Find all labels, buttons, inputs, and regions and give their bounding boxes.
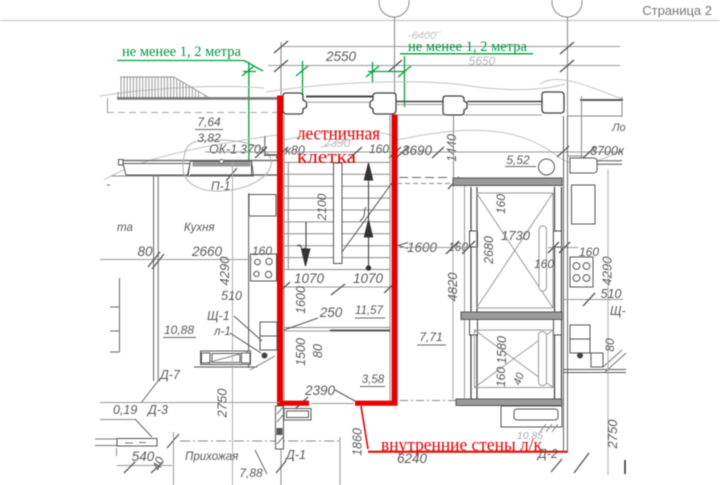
svg-text:2390: 2390 <box>304 383 336 398</box>
svg-text:1440: 1440 <box>445 134 459 162</box>
svg-text:1500: 1500 <box>294 338 308 366</box>
svg-text:3,58: 3,58 <box>362 374 385 386</box>
svg-text:Д-1: Д-1 <box>284 448 306 462</box>
svg-text:1730: 1730 <box>501 228 531 243</box>
svg-text:Д-3: Д-3 <box>146 403 168 417</box>
svg-text:клетка: клетка <box>297 147 357 168</box>
svg-text:1580: 1580 <box>495 336 509 364</box>
svg-text:2550: 2550 <box>325 49 357 64</box>
svg-text:11,57: 11,57 <box>355 305 384 317</box>
svg-text:250: 250 <box>319 305 343 320</box>
svg-text:4290: 4290 <box>217 256 232 286</box>
svg-text:Д-7: Д-7 <box>158 368 181 382</box>
svg-text:510: 510 <box>601 287 622 301</box>
svg-text:Кухня: Кухня <box>184 222 215 234</box>
svg-text:4820: 4820 <box>445 272 460 302</box>
svg-text:та: та <box>117 222 133 234</box>
svg-text:Прихожая: Прихожая <box>185 451 238 463</box>
svg-text:10,88: 10,88 <box>164 323 194 337</box>
svg-text:1600: 1600 <box>294 286 308 314</box>
svg-text:2100: 2100 <box>315 193 329 221</box>
svg-text:Щ-1: Щ-1 <box>207 309 230 323</box>
svg-text:510: 510 <box>221 289 242 303</box>
svg-text:не менее 1, 2 метра: не менее 1, 2 метра <box>122 44 241 60</box>
svg-text:3690: 3690 <box>402 143 433 158</box>
svg-text:10,85: 10,85 <box>517 430 543 442</box>
svg-text:160: 160 <box>494 367 508 387</box>
svg-text:2680: 2680 <box>482 236 496 265</box>
svg-text:6240: 6240 <box>397 451 428 466</box>
svg-text:3700к: 3700к <box>590 144 625 158</box>
svg-text:2750: 2750 <box>605 419 620 450</box>
svg-text:7,88: 7,88 <box>239 466 263 480</box>
svg-text:160: 160 <box>534 257 554 271</box>
svg-text:не менее 1, 2 метра: не менее 1, 2 метра <box>408 39 527 55</box>
svg-text:1070: 1070 <box>353 271 384 286</box>
svg-text:1860: 1860 <box>351 428 365 456</box>
svg-text:лестничная: лестничная <box>297 124 380 145</box>
svg-text:Страница 2: Страница 2 <box>642 3 712 18</box>
svg-text:Ло: Ло <box>611 122 626 134</box>
svg-text:80: 80 <box>603 338 617 352</box>
svg-text:7,64: 7,64 <box>197 115 221 129</box>
svg-text:160: 160 <box>494 194 508 214</box>
svg-text:7,71: 7,71 <box>419 330 442 344</box>
svg-text:4290: 4290 <box>600 256 615 286</box>
svg-text:0,19: 0,19 <box>113 403 137 417</box>
svg-text:5650: 5650 <box>469 54 496 68</box>
svg-text:80: 80 <box>311 344 325 358</box>
svg-text:П-1: П-1 <box>211 179 230 193</box>
svg-text:Д-2: Д-2 <box>536 447 558 461</box>
svg-text:л-1: л-1 <box>213 326 231 338</box>
svg-text:160: 160 <box>252 244 272 258</box>
svg-text:2750: 2750 <box>215 388 230 419</box>
svg-text:3,82: 3,82 <box>197 131 221 145</box>
svg-text:80: 80 <box>137 244 153 259</box>
svg-text:1070: 1070 <box>294 271 325 286</box>
svg-text:Щ-: Щ- <box>610 304 626 318</box>
svg-text:5,52: 5,52 <box>506 153 530 167</box>
svg-text:160: 160 <box>579 245 599 259</box>
